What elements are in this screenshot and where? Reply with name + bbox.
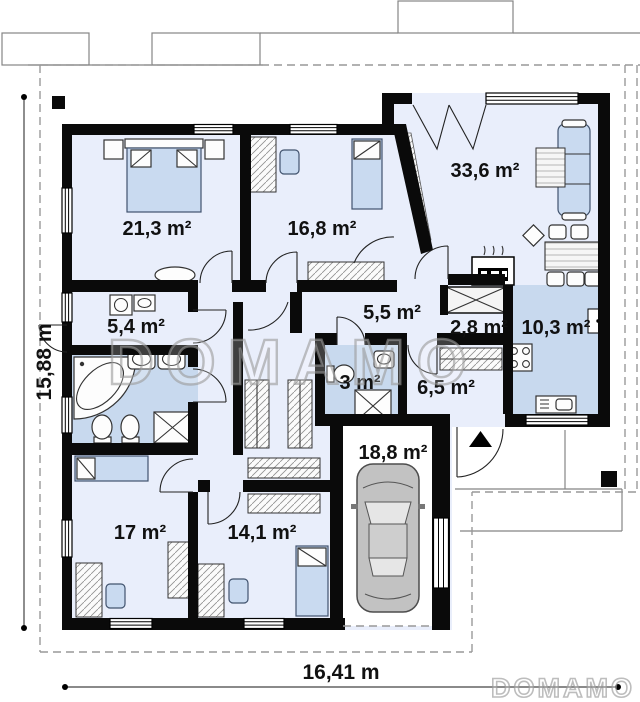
- roof-post-top-left: [52, 96, 65, 109]
- window: [194, 125, 233, 135]
- dimension-width-label: 16,41 m: [302, 661, 379, 684]
- room-label-bedroom-4: 14,1 m²: [228, 522, 297, 544]
- window: [62, 520, 72, 557]
- wardrobe-bedroom4: [248, 494, 320, 513]
- floor-plan-drawing: 15,88 m 16,41 m 21,3 m² 16,8 m² 33,6 m² …: [0, 0, 640, 702]
- single-bed-bedroom2: [352, 139, 382, 209]
- room-label-bedroom-master: 21,3 m²: [123, 218, 192, 240]
- window: [62, 188, 72, 233]
- bed-bedroom4: [296, 546, 328, 616]
- watermark-corner: DOMAMO: [491, 673, 635, 702]
- pantry-cupboard: [446, 287, 506, 313]
- watermark-center: DOMAMO: [108, 326, 479, 398]
- window: [526, 415, 588, 425]
- entrance-arrow-icon: [469, 431, 492, 447]
- room-label-living-room: 33,6 m²: [451, 160, 520, 182]
- room-label-bedroom-2: 16,8 m²: [288, 218, 357, 240]
- dimension-height-label: 15,88 m: [33, 323, 56, 400]
- car: [351, 464, 425, 612]
- floor-plan-page: 15,88 m 16,41 m 21,3 m² 16,8 m² 33,6 m² …: [0, 0, 640, 702]
- window: [244, 619, 284, 629]
- window: [110, 619, 152, 629]
- window: [290, 125, 337, 135]
- kitchen-sink: [536, 396, 576, 413]
- shower-bathroom: [154, 412, 191, 443]
- window: [434, 518, 449, 588]
- window: [486, 93, 578, 104]
- room-label-bedroom-3: 17 m²: [114, 522, 167, 544]
- room-label-hall: 5,5 m²: [363, 302, 421, 324]
- bed-bedroom3: [75, 456, 148, 481]
- wardrobe-bedroom2: [308, 262, 384, 281]
- window: [62, 293, 72, 322]
- rug: [536, 148, 565, 187]
- wardrobe-bedroom3: [168, 542, 190, 598]
- roof-post-porch: [601, 471, 617, 487]
- room-label-garage: 18,8 m²: [359, 442, 428, 464]
- window: [62, 397, 72, 433]
- room-label-kitchen: 10,3 m²: [522, 317, 591, 339]
